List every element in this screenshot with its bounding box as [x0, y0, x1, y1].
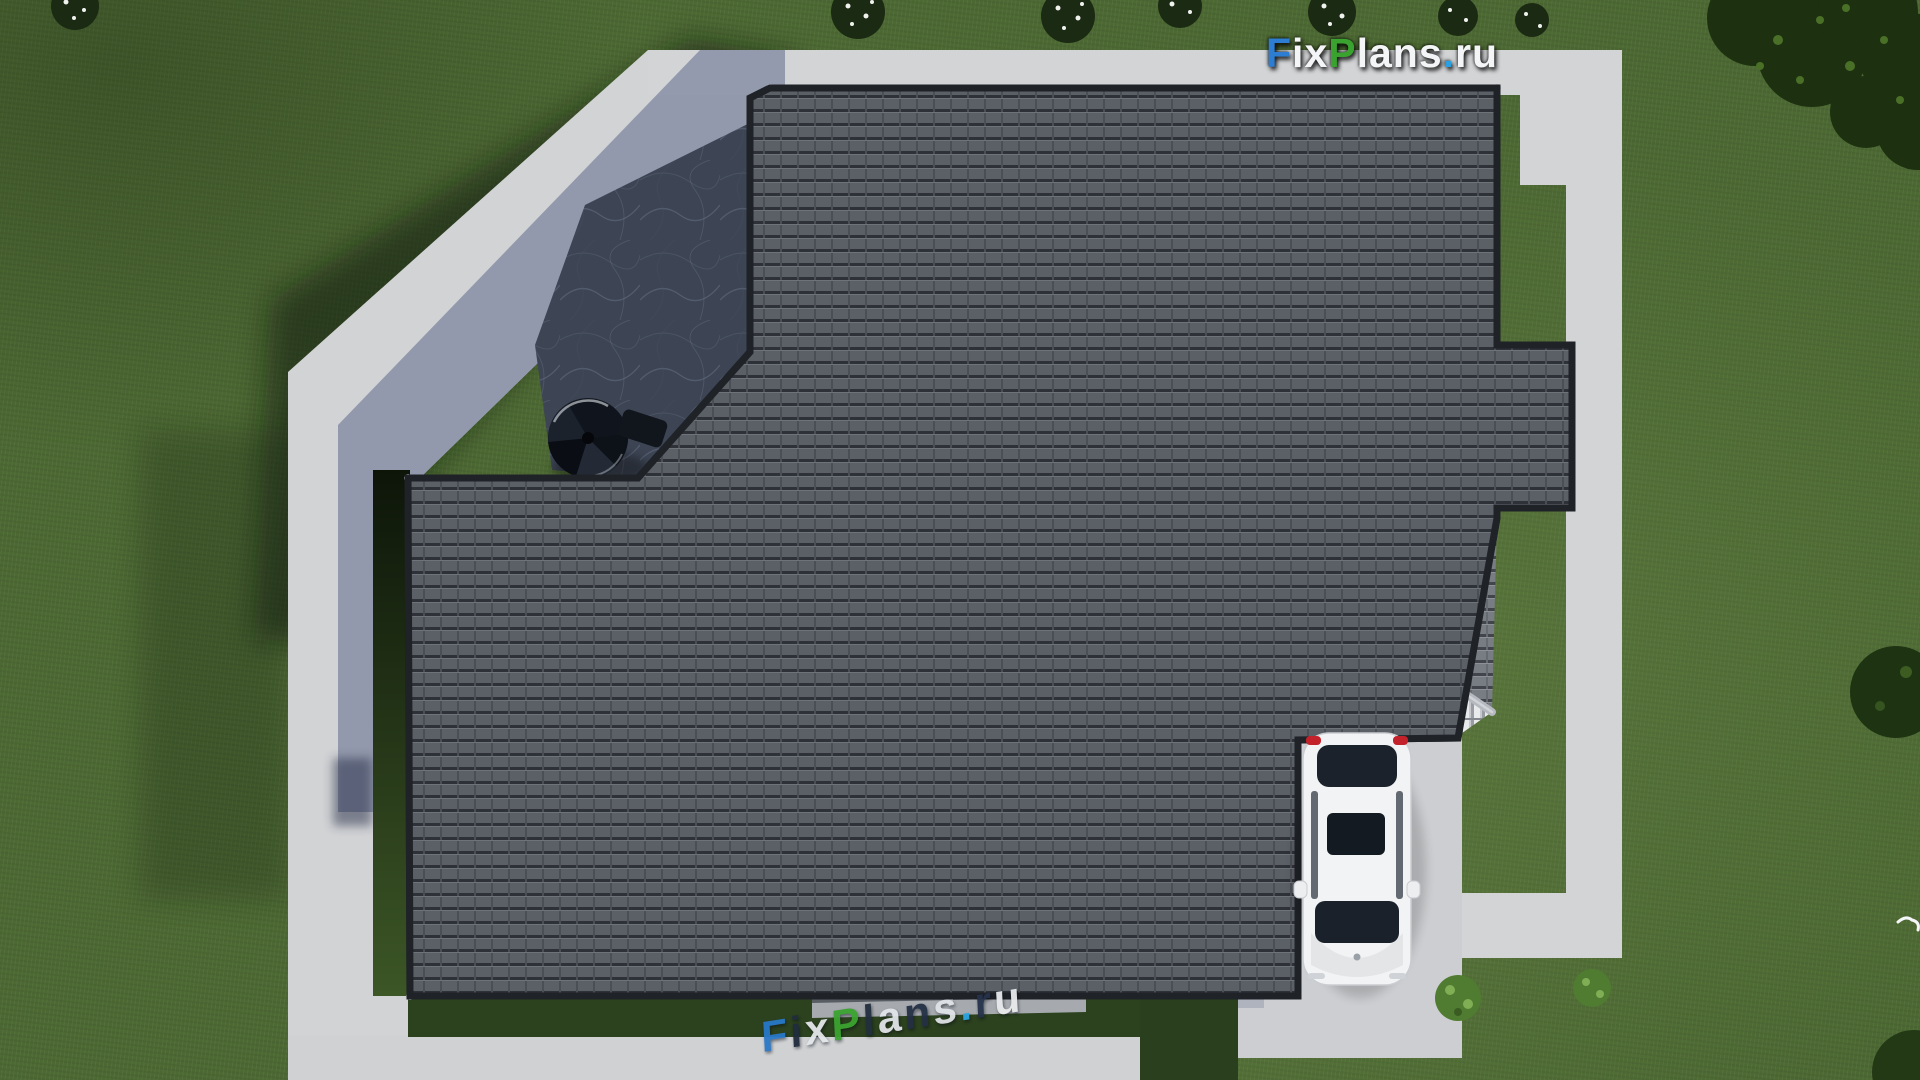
bush-right-edge [1850, 646, 1920, 738]
logo-letter-f: F [1266, 30, 1292, 76]
trees-top-right [1707, 0, 1920, 170]
car-mirror-left [1294, 881, 1307, 898]
car-windshield [1315, 901, 1399, 943]
car-rear-window [1317, 745, 1397, 787]
car-taillight-right [1393, 736, 1408, 745]
white-car [1294, 733, 1420, 985]
bush-bottom-right-corner [1872, 1030, 1920, 1080]
white-bird [1898, 918, 1918, 930]
fixplans-logo: FixPlans.ru [1266, 30, 1498, 77]
aerial-site-render [0, 0, 1920, 1080]
path-right [1566, 72, 1622, 958]
car-sunroof [1327, 813, 1385, 855]
aerial-render-stage: FixPlans.ru FixPlans.ru [0, 0, 1920, 1080]
car-mirror-right [1407, 881, 1420, 898]
logo-letter-p: P [1328, 30, 1356, 76]
car-taillight-left [1306, 736, 1321, 745]
bushes-bottom [1435, 969, 1611, 1021]
